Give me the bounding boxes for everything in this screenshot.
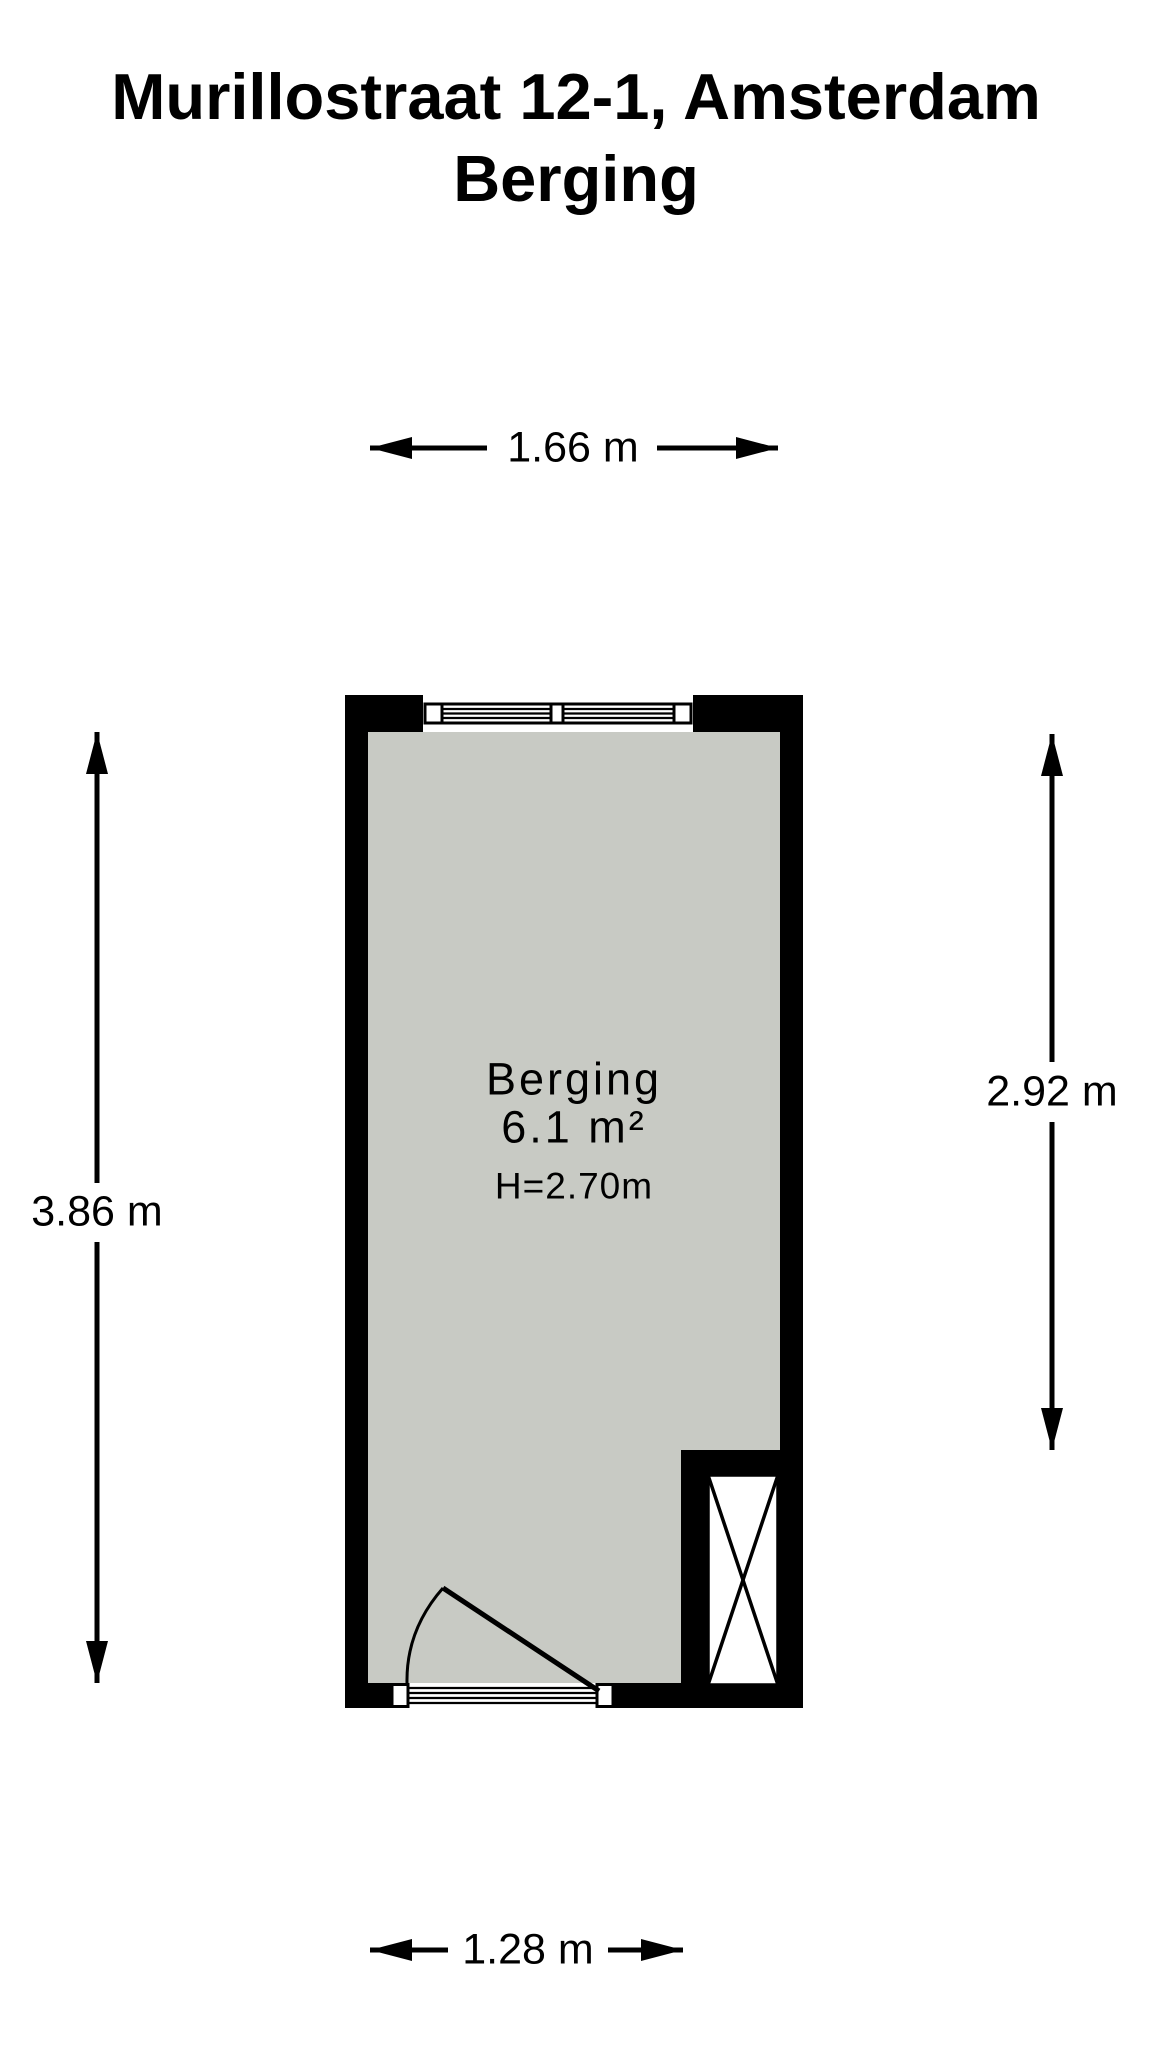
room-area-label: 6.1 m² bbox=[501, 1105, 647, 1150]
dimension-label-top: 1.66 m bbox=[507, 427, 638, 470]
shaft-symbol bbox=[681, 1450, 803, 1708]
dimension-label-right: 2.92 m bbox=[986, 1071, 1117, 1114]
door-post-right bbox=[597, 1685, 613, 1707]
room-name-label: Berging bbox=[486, 1057, 662, 1102]
dimension-label-left: 3.86 m bbox=[31, 1191, 162, 1234]
floorplan-page: Murillostraat 12-1, Amsterdam Berging bbox=[0, 0, 1152, 2048]
door-post-left bbox=[392, 1685, 408, 1707]
room-ceiling-height-label: H=2.70m bbox=[495, 1168, 653, 1205]
floorplan-drawing bbox=[0, 0, 1152, 2048]
dimension-label-bottom: 1.28 m bbox=[462, 1929, 593, 1972]
window-symbol bbox=[423, 695, 693, 732]
